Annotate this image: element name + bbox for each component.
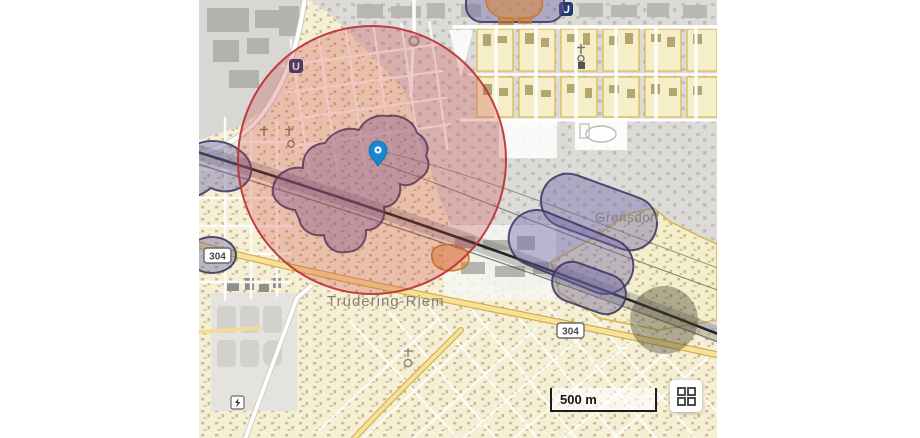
map-stage: U U xyxy=(0,0,920,438)
scale-bar: 500 m xyxy=(550,388,657,412)
village-label: Gronsdorf xyxy=(595,210,660,225)
zone-dark xyxy=(630,286,698,354)
road-ref-badge: 304 xyxy=(204,248,231,263)
svg-text:304: 304 xyxy=(209,252,226,263)
map-canvas[interactable]: U U xyxy=(199,0,717,438)
suburb-label: Trudering-Riem xyxy=(327,293,445,310)
scale-label: 500 m xyxy=(552,393,597,406)
grid-icon xyxy=(677,387,696,406)
selection-radius-circle xyxy=(238,26,506,294)
svg-text:304: 304 xyxy=(562,327,579,338)
layers-grid-button[interactable] xyxy=(670,380,702,412)
charging-station-icon xyxy=(231,396,244,409)
road-ref-badge: 304 xyxy=(557,323,584,338)
